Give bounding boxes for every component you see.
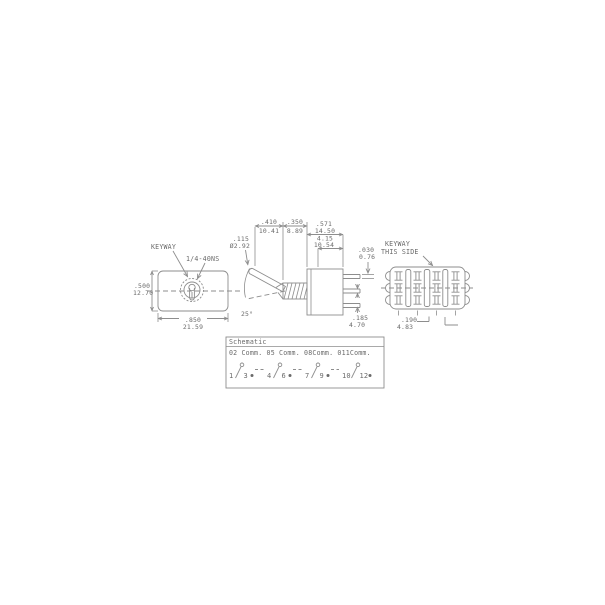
keyway-label: KEYWAY xyxy=(151,243,176,251)
pole-right-terminal: 3 xyxy=(244,372,248,380)
rear-view: KEYWAY THIS SIDE .190 4. xyxy=(381,240,473,331)
front-height-mm: 12.70 xyxy=(133,289,153,297)
front-width-mm: 21.59 xyxy=(183,323,203,331)
schematic-pole: 1 3 xyxy=(229,363,254,380)
side-bushing-threads xyxy=(284,283,307,299)
schematic-panel: Schematic 02 Comm. 05 Comm. 08Comm. 011C… xyxy=(226,337,384,388)
rear-pitch-mm: 4.83 xyxy=(397,323,413,331)
side-terminal-1 xyxy=(343,275,360,279)
pole-left-terminal: 4 xyxy=(267,372,271,380)
bushing-len-mm: 8.89 xyxy=(287,227,303,235)
throw-angle-label: 25° xyxy=(241,310,253,318)
toggle-switch-drawing: KEYWAY 1/4-40NS .500 12.70 .850 21.59 xyxy=(0,0,605,605)
pole-common-terminal xyxy=(278,363,282,367)
pole-lever xyxy=(352,367,358,378)
pole-contact-dot xyxy=(327,374,330,377)
technical-drawing-page: KEYWAY 1/4-40NS .500 12.70 .850 21.59 xyxy=(0,0,605,605)
lever-len-in: .410 xyxy=(261,218,277,226)
lever-dia-mm: Ø2.92 xyxy=(230,242,250,250)
rear-pitch-hook-right xyxy=(445,317,458,325)
side-view: 25° .115 Ø2.92 .410 10.41 .350 8.89 .571… xyxy=(230,218,375,329)
rear-keyway-note-line1: KEYWAY xyxy=(385,240,410,248)
pole-contact-dot xyxy=(251,374,254,377)
side-body-outline xyxy=(307,269,343,315)
pole-left-terminal: 7 xyxy=(305,372,309,380)
thread-label: 1/4-40NS xyxy=(186,255,219,263)
bushing-len-in: .350 xyxy=(287,218,303,226)
lever-len-mm: 10.41 xyxy=(259,227,279,235)
side-terminal-3 xyxy=(343,304,360,308)
pole-right-terminal: 12 xyxy=(360,372,369,380)
lever-dia-leader xyxy=(246,250,248,265)
pole-common-terminal xyxy=(356,363,360,367)
rear-keyway-note-line2: THIS SIDE xyxy=(381,248,419,256)
schematic-title: Schematic xyxy=(229,338,267,346)
terminal-thickness-mm: 0.76 xyxy=(359,253,375,261)
pole-contact-dot xyxy=(289,374,292,377)
pole-lever xyxy=(312,367,318,378)
pole-right-terminal: 9 xyxy=(320,372,324,380)
pole-lever xyxy=(236,367,242,378)
inner-len-mm: 10.54 xyxy=(314,241,334,249)
side-lever xyxy=(249,268,286,291)
schematic-pole: 10 12 xyxy=(342,363,372,380)
schematic-commons-note: 02 Comm. 05 Comm. 08Comm. 011Comm. xyxy=(229,349,371,357)
front-view: KEYWAY 1/4-40NS .500 12.70 .850 21.59 xyxy=(133,243,240,331)
pole-contact-dot xyxy=(369,374,372,377)
side-terminal-2 xyxy=(343,289,360,293)
rear-bottom-ticks xyxy=(399,311,456,316)
pole-left-terminal: 1 xyxy=(229,372,233,380)
terminal-spacing-mm: 4.70 xyxy=(349,321,365,329)
pole-common-terminal xyxy=(240,363,244,367)
rear-pitch-hook xyxy=(417,317,429,322)
pole-lever xyxy=(274,367,280,378)
pole-left-terminal: 10 xyxy=(342,372,351,380)
schematic-pole: 7 9 xyxy=(305,363,330,380)
schematic-pole: 4 6 xyxy=(267,363,292,380)
pole-common-terminal xyxy=(316,363,320,367)
side-throw-centerline xyxy=(247,291,285,299)
pole-right-terminal: 6 xyxy=(282,372,286,380)
rear-keyway-leader xyxy=(423,256,433,266)
